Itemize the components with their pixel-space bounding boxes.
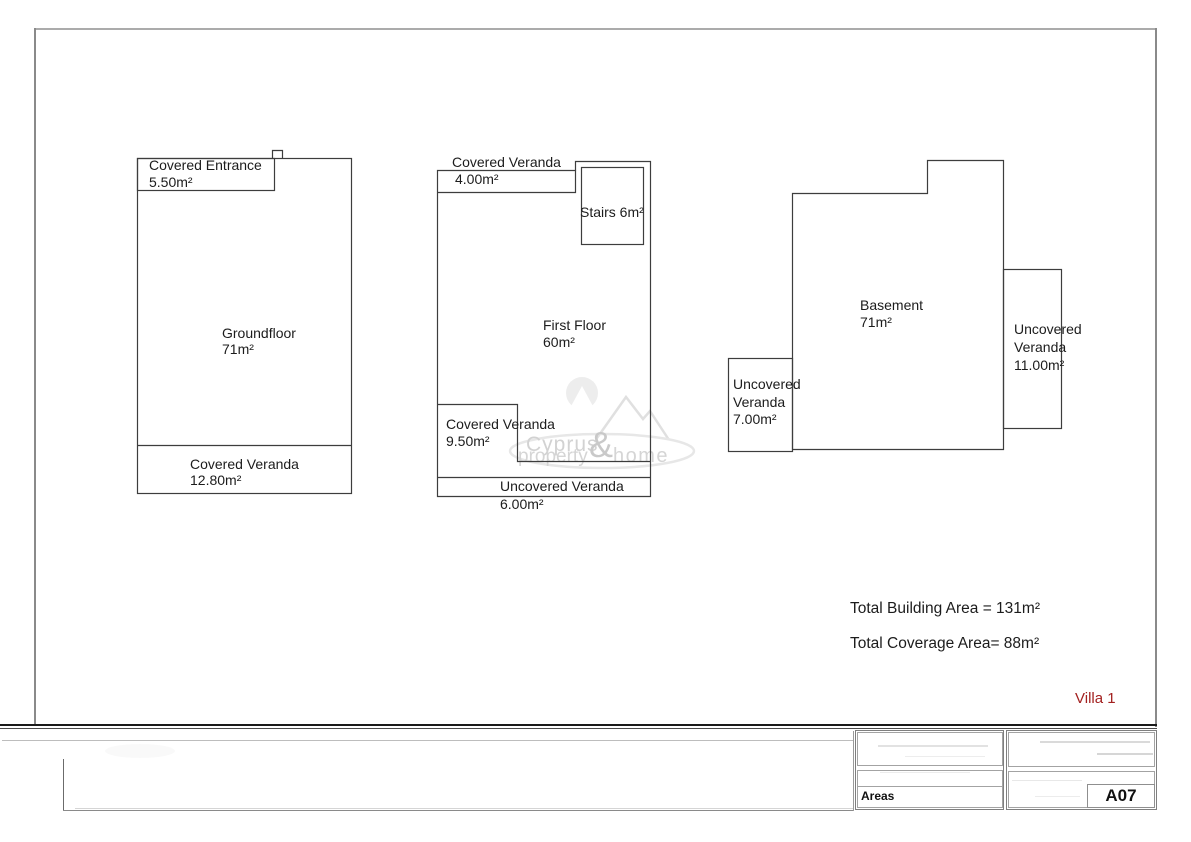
first-floor-label: First Floor 60m² bbox=[543, 317, 606, 351]
covered-veranda-95-area: 9.50m² bbox=[446, 433, 555, 450]
uncovered-veranda-7-word2: Veranda bbox=[733, 394, 801, 412]
total-coverage-area-text: Total Coverage Area= 88m² bbox=[850, 635, 1039, 653]
scan-artifact-line bbox=[880, 772, 970, 773]
scan-artifact-line bbox=[1097, 753, 1153, 755]
groundfloor-label: Groundfloor 71m² bbox=[222, 325, 296, 357]
sheet-number: A07 bbox=[1105, 786, 1136, 806]
titleblock-cell-top-right bbox=[1008, 732, 1155, 767]
uncovered-veranda-6-label: Uncovered Veranda 6.00m² bbox=[500, 477, 624, 513]
signature-box-right-edge bbox=[853, 731, 854, 811]
areas-cell-divider bbox=[858, 786, 1002, 787]
uncovered-veranda-7-word1: Uncovered bbox=[733, 376, 801, 394]
signature-box-bottom-shadow bbox=[75, 808, 854, 809]
villa-number-label: Villa 1 bbox=[1075, 690, 1116, 707]
covered-veranda-95-label: Covered Veranda 9.50m² bbox=[446, 416, 555, 450]
covered-entrance-name: Covered Entrance bbox=[149, 157, 262, 174]
basement-name: Basement bbox=[860, 297, 923, 314]
titleblock-heavy-rule bbox=[0, 724, 1157, 726]
signature-box-left-edge bbox=[63, 759, 64, 811]
covered-veranda-12-name: Covered Veranda bbox=[190, 456, 299, 472]
titleblock-cell-top-left bbox=[857, 732, 1003, 766]
scan-artifact-line bbox=[1012, 780, 1082, 781]
covered-entrance-label: Covered Entrance 5.50m² bbox=[149, 157, 262, 190]
uncovered-veranda-6-name: Uncovered Veranda bbox=[500, 477, 624, 495]
basement-area: 71m² bbox=[860, 314, 923, 331]
first-floor-area: 60m² bbox=[543, 334, 606, 351]
titleblock-top-light-rule bbox=[2, 740, 854, 741]
stairs-label: Stairs 6m² bbox=[580, 204, 644, 221]
covered-entrance-area: 5.50m² bbox=[149, 174, 262, 191]
first-floor-name: First Floor bbox=[543, 317, 606, 334]
uncovered-veranda-6-area: 6.00m² bbox=[500, 495, 624, 513]
titleblock-heavy-rule-2 bbox=[0, 728, 1157, 729]
scan-artifact-line bbox=[878, 745, 988, 747]
groundfloor-name: Groundfloor bbox=[222, 325, 296, 341]
scan-artifact-line bbox=[1035, 796, 1080, 797]
uncovered-veranda-11-word1: Uncovered bbox=[1014, 320, 1082, 338]
signature-box-bottom-edge bbox=[63, 810, 854, 811]
covered-veranda-95-name: Covered Veranda bbox=[446, 416, 555, 433]
uncovered-veranda-11-word2: Veranda bbox=[1014, 338, 1082, 356]
covered-veranda-12-area: 12.80m² bbox=[190, 472, 299, 488]
total-building-area-text: Total Building Area = 131m² bbox=[850, 600, 1040, 618]
floorplan-linework bbox=[0, 0, 1191, 842]
groundfloor-top-notch bbox=[273, 151, 283, 159]
uncovered-veranda-7-area: 7.00m² bbox=[733, 411, 801, 429]
scan-artifact-line bbox=[1040, 741, 1150, 743]
sheet-number-box: A07 bbox=[1087, 784, 1155, 808]
scan-smudge bbox=[105, 744, 175, 758]
groundfloor-area: 71m² bbox=[222, 341, 296, 357]
areas-label: Areas bbox=[861, 789, 894, 803]
covered-veranda-4-title: Covered Veranda bbox=[452, 154, 561, 171]
basement-label: Basement 71m² bbox=[860, 297, 923, 331]
uncovered-veranda-11-label: Uncovered Veranda 11.00m² bbox=[1014, 320, 1082, 374]
uncovered-veranda-7-label: Uncovered Veranda 7.00m² bbox=[733, 376, 801, 429]
uncovered-veranda-11-area: 11.00m² bbox=[1014, 356, 1082, 374]
drawing-sheet: Cyprus & property home Covered Entrance … bbox=[0, 0, 1191, 842]
covered-veranda-4-area: 4.00m² bbox=[455, 171, 499, 188]
scan-artifact-line bbox=[905, 756, 985, 757]
covered-veranda-12-label: Covered Veranda 12.80m² bbox=[190, 456, 299, 488]
